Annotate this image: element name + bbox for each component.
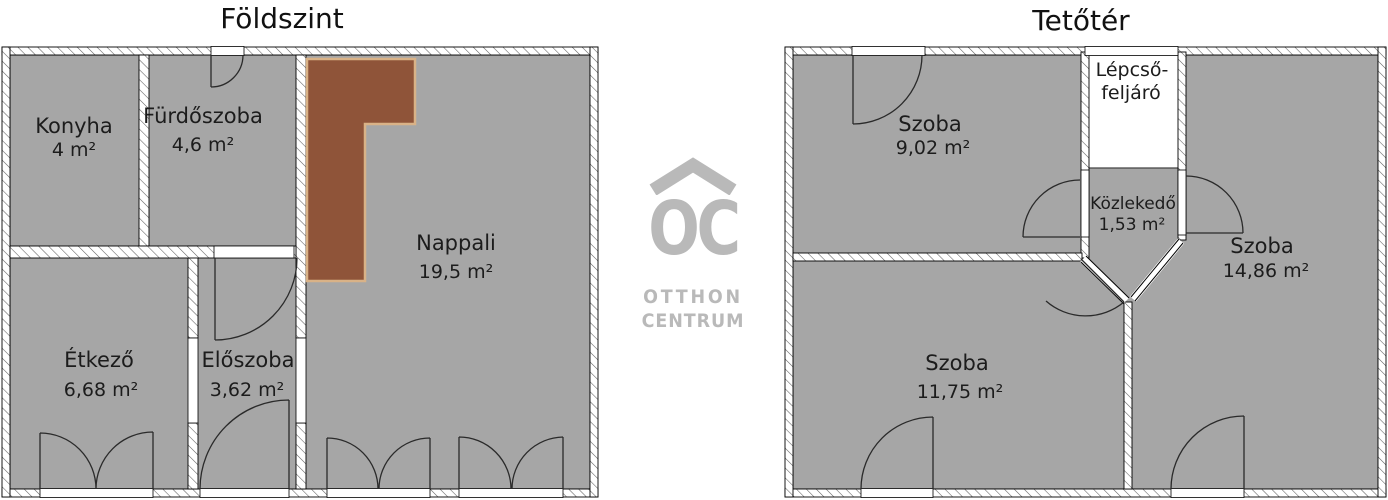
room-label-kozlekedo: Közlekedő [1090, 196, 1176, 213]
attic-floor-title: Tetőtér [1032, 4, 1129, 37]
room-label-szoba14: Szoba [1230, 236, 1293, 257]
opening-szoba14-bottom [1171, 489, 1244, 498]
room-label-szoba11: Szoba [925, 353, 988, 374]
area-label-szoba9: 9,02 m² [896, 139, 970, 158]
room-label-konyha: Konyha [35, 116, 113, 137]
wall-szoba9-bottom [793, 253, 1082, 261]
otthon-centrum-logo: OC OTTHON CENTRUM [620, 150, 766, 332]
area-label-szoba14: 14,86 m² [1223, 262, 1310, 281]
opening-nappali-terrace-1 [327, 489, 430, 498]
wall-left [2, 47, 10, 497]
opening-furdoszoba-eloszoba [214, 246, 294, 258]
opening-stairwell-top [1085, 47, 1178, 56]
opening-szoba11-bottom [861, 489, 933, 498]
room-label-lepcso-2: feljáró [1101, 84, 1161, 103]
opening-szoba9-top [852, 47, 925, 56]
floorplan-page: { "ground_floor": { "title": "Földszint"… [0, 0, 1388, 500]
room-label-szoba9: Szoba [898, 114, 961, 135]
wall-left [785, 47, 793, 497]
wall-szoba11-szoba14 [1124, 302, 1132, 489]
wall-etkezo-eloszoba-lower [188, 423, 198, 489]
wall-right [1378, 47, 1386, 497]
room-label-nappali: Nappali [416, 233, 496, 254]
area-label-etkezo: 6,68 m² [64, 381, 138, 400]
opening-etkezo-terrace [40, 489, 153, 498]
area-label-nappali: 19,5 m² [419, 263, 493, 282]
wall-etkezo-eloszoba-upper [188, 246, 198, 338]
wall-right [590, 47, 598, 497]
opening-nappali-terrace-2 [459, 489, 563, 498]
opening-eloszoba-entry [200, 489, 289, 498]
logo-brand-line1: OTTHON [626, 287, 760, 308]
wall-nappali-upper [296, 55, 306, 338]
area-label-szoba11: 11,75 m² [917, 383, 1004, 402]
area-label-furdoszoba: 4,6 m² [172, 136, 234, 155]
room-label-eloszoba: Előszoba [202, 350, 295, 371]
wall-nappali-lower [296, 423, 306, 489]
opening-etkezo-eloszoba [188, 338, 198, 423]
logo-brand-line2: CENTRUM [626, 311, 760, 332]
wall-konyha-furdoszoba [139, 55, 149, 246]
ground-floor-title: Földszint [220, 2, 344, 35]
opening-kozlekedo-szoba9 [1081, 170, 1089, 237]
opening-furdoszoba-top [211, 47, 244, 56]
ground-floor-plan-svg [0, 40, 600, 500]
opening-eloszoba-nappali [296, 338, 306, 423]
room-label-furdoszoba: Fürdőszoba [143, 106, 263, 127]
wall-top [2, 47, 598, 55]
room-label-etkezo: Étkező [64, 350, 134, 371]
opening-kozlekedo-szoba14 [1178, 170, 1186, 235]
room-label-lepcso-1: Lépcső- [1096, 61, 1169, 80]
area-label-eloszoba: 3,62 m² [210, 381, 284, 400]
area-label-kozlekedo: 1,53 m² [1099, 217, 1166, 234]
area-label-konyha: 4 m² [52, 141, 96, 160]
logo-monogram: OC [633, 199, 753, 261]
